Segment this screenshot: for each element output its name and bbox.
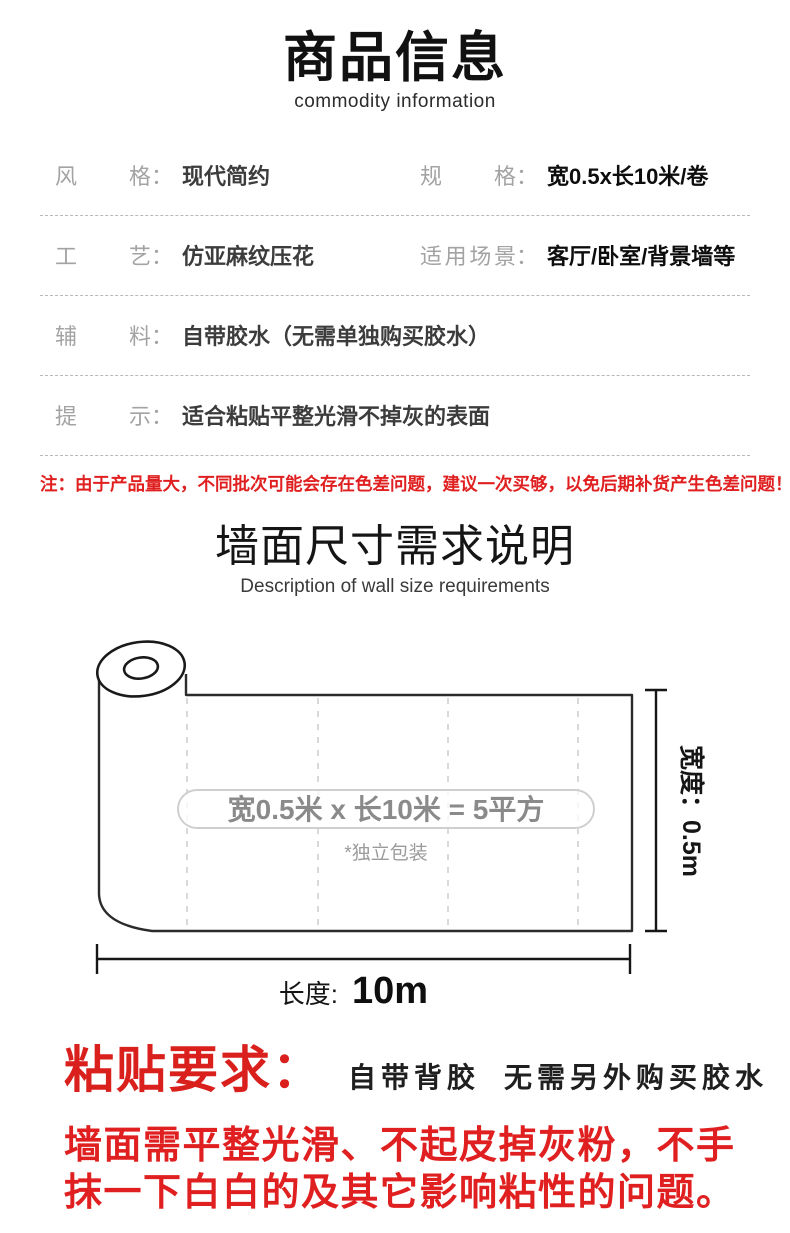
paste-requirements-header: 粘贴要求： 自带背胶 无需另外购买胶水 bbox=[64, 1039, 790, 1110]
page-title: 商品信息 bbox=[0, 26, 790, 90]
area-pill-label: 宽0.5米 x 长10米 = 5平方 bbox=[228, 793, 545, 825]
spec-label: 辅料 bbox=[55, 319, 151, 351]
spec-colon: ： bbox=[151, 399, 173, 431]
size-section-title: 墙面尺寸需求说明 bbox=[0, 520, 790, 574]
width-label: 宽度：0.5m bbox=[677, 745, 706, 877]
table-row: 提示： 适合粘贴平整光滑不掉灰的表面 bbox=[40, 376, 750, 456]
spec-label: 提示 bbox=[55, 399, 151, 431]
spec-colon: ： bbox=[516, 159, 538, 191]
spec-label: 规格 bbox=[420, 159, 516, 191]
table-row: 辅料： 自带胶水（无需单独购买胶水） bbox=[40, 296, 750, 376]
page-subtitle: commodity information bbox=[0, 90, 790, 114]
size-section-subtitle: Description of wall size requirements bbox=[0, 574, 790, 600]
size-section-header: 墙面尺寸需求说明 Description of wall size requir… bbox=[0, 520, 790, 600]
paste-requirements-subtext: 自带背胶 无需另外购买胶水 bbox=[348, 1048, 768, 1110]
product-info-page: 商品信息 commodity information 风格： 现代简约 规格： … bbox=[0, 0, 790, 1217]
width-dimension-line bbox=[645, 690, 667, 931]
spec-cell-size: 规格： 宽0.5x长10米/卷 bbox=[420, 159, 750, 191]
length-label: 长度: bbox=[279, 979, 338, 1009]
spec-colon: ： bbox=[151, 319, 173, 351]
table-row: 风格： 现代简约 规格： 宽0.5x长10米/卷 bbox=[40, 136, 750, 216]
spec-value: 客厅/卧室/背景墙等 bbox=[547, 239, 735, 271]
spec-label: 风格 bbox=[55, 159, 151, 191]
spec-colon: ： bbox=[151, 159, 173, 191]
paste-requirements-heading: 粘贴要求： bbox=[64, 1039, 324, 1101]
spec-colon: ： bbox=[516, 239, 538, 271]
body-line: 墙面需平整光滑、不起皮掉灰粉，不手 bbox=[64, 1123, 754, 1170]
spec-colon: ： bbox=[151, 239, 173, 271]
spec-value: 自带胶水（无需单独购买胶水） bbox=[182, 319, 490, 351]
spec-cell-style: 风格： 现代简约 bbox=[55, 159, 420, 191]
spec-value: 适合粘贴平整光滑不掉灰的表面 bbox=[182, 399, 490, 431]
header: 商品信息 commodity information bbox=[0, 0, 790, 114]
spec-cell-scene: 适用场景： 客厅/卧室/背景墙等 bbox=[420, 239, 750, 271]
spec-value: 宽0.5x长10米/卷 bbox=[547, 159, 708, 191]
spec-cell-tip: 提示： 适合粘贴平整光滑不掉灰的表面 bbox=[55, 399, 490, 431]
spec-cell-accessory: 辅料： 自带胶水（无需单独购买胶水） bbox=[55, 319, 490, 351]
length-value: 10m bbox=[352, 970, 428, 1011]
spec-label: 适用场景 bbox=[420, 239, 516, 271]
color-difference-notice: 注：由于产品量大，不同批次可能会存在色差问题，建议一次买够，以免后期补货产生色差… bbox=[40, 472, 790, 496]
table-row: 工艺： 仿亚麻纹压花 适用场景： 客厅/卧室/背景墙等 bbox=[40, 216, 750, 296]
paste-requirements: 粘贴要求： 自带背胶 无需另外购买胶水 墙面需平整光滑、不起皮掉灰粉，不手 抹一… bbox=[64, 1039, 790, 1217]
spec-table: 风格： 现代简约 规格： 宽0.5x长10米/卷 工艺： 仿亚麻纹压花 适用场景… bbox=[40, 136, 750, 456]
packaging-note: *独立包装 bbox=[344, 842, 427, 864]
wallpaper-roll-diagram: 宽0.5米 x 长10米 = 5平方 *独立包装 宽度：0.5m 长度: 10m bbox=[0, 626, 790, 1011]
spec-value: 现代简约 bbox=[182, 159, 270, 191]
spec-label: 工艺 bbox=[55, 239, 151, 271]
paste-requirements-body: 墙面需平整光滑、不起皮掉灰粉，不手 抹一下白白的及其它影响粘性的问题。 bbox=[64, 1123, 754, 1217]
spec-cell-craft: 工艺： 仿亚麻纹压花 bbox=[55, 239, 420, 271]
body-line: 抹一下白白的及其它影响粘性的问题。 bbox=[64, 1170, 754, 1217]
spec-value: 仿亚麻纹压花 bbox=[182, 239, 314, 271]
